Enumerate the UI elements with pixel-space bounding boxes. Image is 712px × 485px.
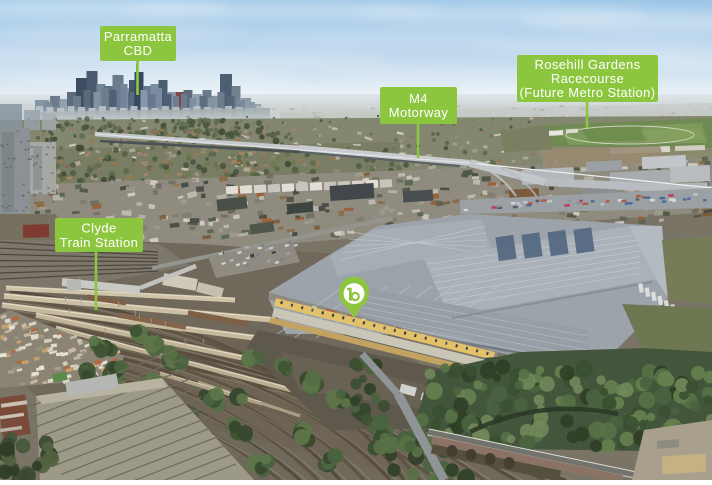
svg-text:Rosehill Gardens: Rosehill Gardens bbox=[534, 57, 640, 72]
svg-text:Train Station: Train Station bbox=[60, 235, 138, 250]
svg-text:CBD: CBD bbox=[124, 43, 153, 58]
svg-text:Parramatta: Parramatta bbox=[104, 29, 173, 44]
svg-text:Motorway: Motorway bbox=[389, 105, 449, 120]
svg-text:M4: M4 bbox=[409, 91, 428, 106]
svg-text:Clyde: Clyde bbox=[81, 220, 116, 235]
svg-text:Racecourse: Racecourse bbox=[551, 71, 624, 86]
svg-text:(Future Metro Station): (Future Metro Station) bbox=[520, 85, 656, 100]
